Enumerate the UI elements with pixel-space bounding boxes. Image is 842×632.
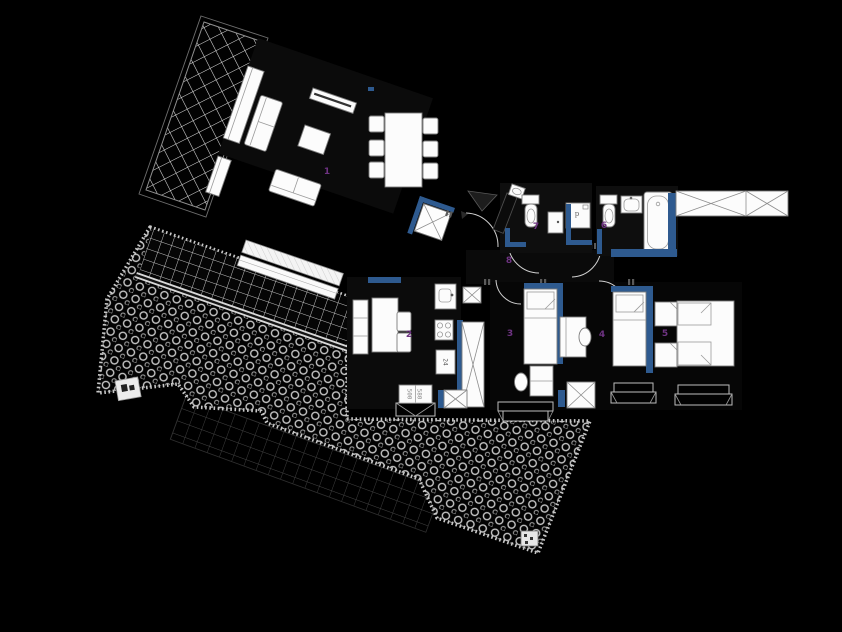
dining-table	[385, 113, 422, 187]
kitchen-table	[372, 298, 398, 352]
wall-accent	[646, 286, 653, 373]
room-label-bedroom-master: 5	[662, 329, 668, 339]
wall-accent	[524, 283, 560, 289]
window-sill-middle	[611, 383, 656, 403]
cabinet-x-bottom-2	[567, 382, 595, 408]
wc-room	[493, 183, 592, 253]
sink-bath	[621, 196, 642, 213]
room-label-bathroom: 6	[601, 221, 607, 231]
hall-floor	[466, 250, 614, 284]
terrace-corner-box	[115, 377, 141, 401]
cabinet-x-small	[463, 287, 481, 303]
entry-arrow	[468, 191, 497, 211]
washer-label: p	[575, 210, 579, 218]
wall-accent	[611, 286, 652, 292]
cabinet-x-bottom-1	[444, 390, 467, 408]
wardrobe-top-right	[676, 191, 788, 216]
wall-accent	[566, 240, 592, 245]
dresser-left	[530, 366, 553, 396]
wall-accent-segment	[368, 87, 374, 91]
wall-accent	[597, 229, 602, 254]
bed-double	[677, 301, 734, 366]
room-label-wc: 7	[533, 222, 539, 232]
bathtub	[644, 192, 672, 253]
kitchen-appliance-label: 24	[442, 358, 449, 365]
nightstand-top	[655, 302, 677, 326]
wall-accent	[368, 277, 401, 283]
room-label-living: 1	[324, 167, 330, 177]
floor-plan-drawing	[0, 0, 842, 632]
door-pivot	[461, 211, 468, 219]
desk-chair	[579, 328, 591, 346]
window-dimension-label: 500	[406, 389, 413, 400]
window-sill-master	[675, 385, 732, 405]
nightstand-bottom	[655, 343, 677, 367]
wall-accent	[668, 193, 676, 253]
bed-single-left	[524, 289, 557, 364]
wall-accent	[505, 242, 526, 247]
terrace-drain	[521, 531, 538, 546]
stove	[435, 320, 453, 340]
kitchen-sink-unit	[435, 284, 456, 309]
room-label-bedroom-middle: 4	[599, 330, 605, 340]
window-dimension-label: 580	[416, 389, 423, 400]
window-sill-left	[498, 402, 553, 421]
wall-accent	[558, 390, 565, 407]
floor-plan: 1 2 3 4 5 6 7 8 24 p 500 580	[0, 0, 842, 632]
wall-accent	[566, 204, 571, 245]
chair-left	[515, 373, 528, 391]
room-label-hall: 8	[506, 256, 512, 266]
room-label-kitchen: 2	[406, 330, 412, 340]
shaft	[407, 196, 455, 245]
bed-single-middle	[613, 292, 646, 366]
entry-door-arc	[466, 213, 498, 247]
vanity-cabinet	[548, 212, 563, 233]
entrance-area	[407, 191, 498, 247]
room-label-bedroom-left: 3	[507, 329, 513, 339]
bathroom-room	[596, 186, 678, 257]
kitchen-counter-left	[353, 300, 368, 354]
wall-accent	[611, 249, 677, 257]
wall-accent	[438, 390, 444, 408]
